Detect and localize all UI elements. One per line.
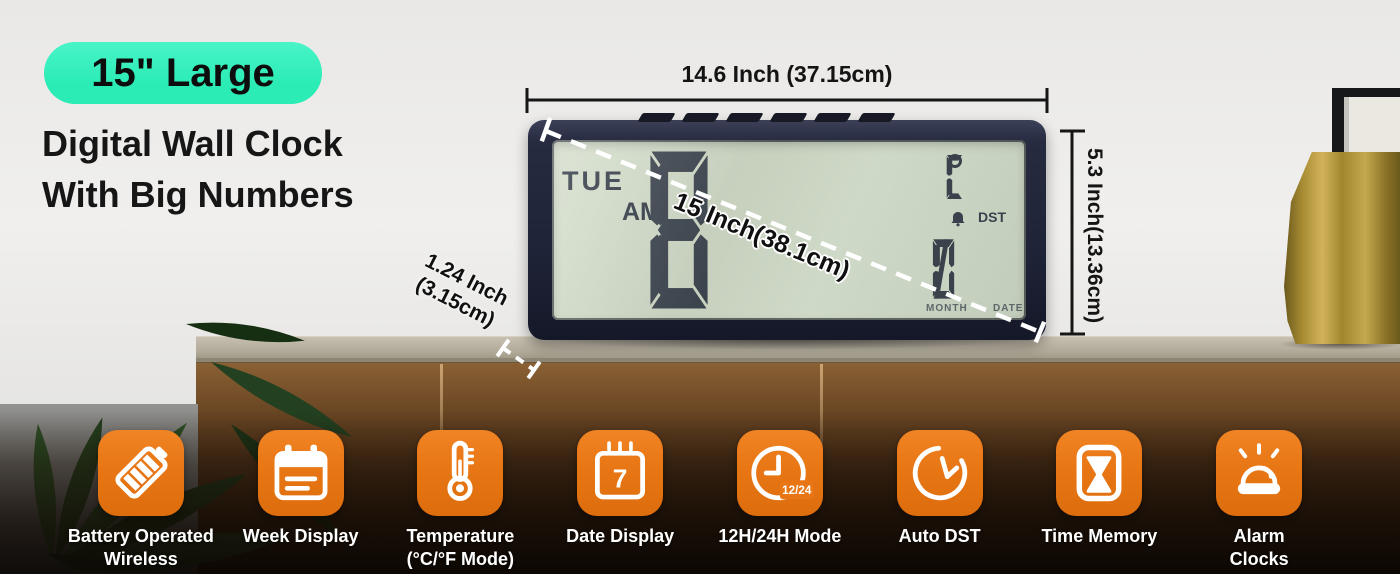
feature-label: Date Display bbox=[540, 525, 700, 548]
height-dimension-label: 5.3 Inch(13.36cm) bbox=[1082, 136, 1106, 336]
svg-text:12/24: 12/24 bbox=[782, 484, 812, 497]
feature-icon-box: 12/24 bbox=[737, 430, 823, 516]
dst-label: DST bbox=[978, 209, 1006, 225]
feature-icon-box bbox=[1216, 430, 1302, 516]
product-title-line1: Digital Wall Clock bbox=[42, 118, 354, 169]
month-label: MONTH bbox=[926, 303, 968, 314]
feature-icon-box bbox=[897, 430, 983, 516]
feature-item-8: AlarmClocks bbox=[1179, 430, 1339, 571]
feature-label: Battery OperatedWireless bbox=[61, 525, 221, 571]
feature-item-6: Auto DST bbox=[860, 430, 1020, 571]
weekday-label: TUE bbox=[562, 166, 625, 197]
feature-row: Battery OperatedWirelessWeek DisplayTemp… bbox=[61, 430, 1339, 571]
product-feature-image: TUE AM DST MONTH DATE bbox=[0, 0, 1400, 574]
battery-icon bbox=[106, 438, 176, 508]
product-title-line2: With Big Numbers bbox=[42, 169, 354, 220]
product-title: Digital Wall Clock With Big Numbers bbox=[42, 118, 354, 220]
feature-icon-box bbox=[98, 430, 184, 516]
width-dimension-label: 14.6 Inch (37.15cm) bbox=[527, 61, 1047, 88]
feature-item-3: Temperature(°C/°F Mode) bbox=[381, 430, 541, 571]
feature-item-5: 12/2412H/24H Mode bbox=[700, 430, 860, 571]
feature-item-7: Time Memory bbox=[1020, 430, 1180, 571]
clock-dst-icon bbox=[905, 438, 975, 508]
thermometer-icon bbox=[425, 438, 495, 508]
lcd-display: TUE AM DST MONTH DATE bbox=[552, 140, 1026, 320]
clock-top-buttons bbox=[640, 113, 893, 122]
digital-wall-clock: TUE AM DST MONTH DATE bbox=[528, 120, 1046, 340]
calendar-date-icon: 7 bbox=[585, 438, 655, 508]
date-label: DATE bbox=[993, 303, 1023, 314]
feature-item-2: Week Display bbox=[221, 430, 381, 571]
feature-label: Temperature(°C/°F Mode) bbox=[381, 525, 541, 571]
feature-label: Week Display bbox=[221, 525, 381, 548]
feature-icon-box: 7 bbox=[577, 430, 663, 516]
alarm-siren-icon bbox=[1224, 438, 1294, 508]
feature-label: 12H/24H Mode bbox=[700, 525, 860, 548]
gold-vase bbox=[1284, 152, 1400, 344]
feature-item-1: Battery OperatedWireless bbox=[61, 430, 221, 571]
feature-icon-box bbox=[417, 430, 503, 516]
feature-label: AlarmClocks bbox=[1179, 525, 1339, 571]
alarm-bell-icon bbox=[950, 211, 966, 227]
feature-item-4: 7Date Display bbox=[540, 430, 700, 571]
svg-text:7: 7 bbox=[613, 464, 628, 494]
feature-icon-box bbox=[1056, 430, 1142, 516]
calendar-week-icon bbox=[266, 438, 336, 508]
feature-icon-box bbox=[258, 430, 344, 516]
feature-label: Auto DST bbox=[860, 525, 1020, 548]
clock-12-24-icon: 12/24 bbox=[745, 438, 815, 508]
hourglass-icon bbox=[1064, 438, 1134, 508]
feature-label: Time Memory bbox=[1020, 525, 1180, 548]
size-badge: 15" Large bbox=[44, 42, 322, 104]
